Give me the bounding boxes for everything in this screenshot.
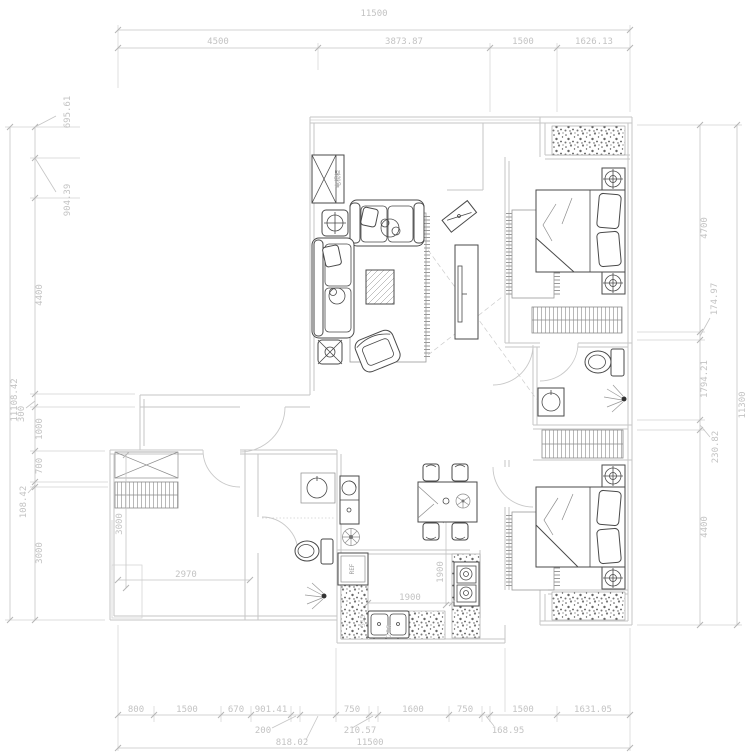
dim-bottom-seg-6: 750: [344, 705, 360, 715]
dim-bottom-seg-10: 168.95: [492, 726, 525, 736]
living-room: 电视柜: [312, 155, 548, 415]
dim-bottom-seg-0: 800: [128, 705, 144, 715]
dim-bedroom3-width: 2970: [175, 570, 197, 580]
nightstand-bedroom2-bottom: [602, 567, 625, 589]
dim-sink-width: 515: [359, 615, 367, 628]
dining-area: [340, 464, 477, 546]
dim-bottom-total: 11500: [356, 738, 383, 748]
dim-bottom-seg-7: 210.57: [344, 726, 377, 736]
fridge-label: REF: [349, 563, 356, 574]
dim-bedroom3-depth: 3000: [115, 513, 125, 535]
dim-bottom-seg-5: 818.02: [276, 738, 309, 748]
toilet-bathroom1: [585, 349, 624, 376]
bay-window-bottom: [552, 592, 625, 620]
bathroom2: [295, 473, 335, 609]
bedroom1: [509, 168, 625, 298]
nightstand-bedroom1-top: [602, 168, 625, 190]
toilet-bathroom2: [295, 539, 333, 564]
dim-left-seg-5: 700: [35, 458, 45, 474]
bathroom1-door-arc: [540, 343, 578, 381]
sofa-three-seat: [350, 200, 424, 246]
side-table-small: [318, 340, 342, 364]
side-table-lamp: [322, 210, 348, 236]
dim-bottom-seg-4: 200: [255, 726, 271, 736]
dim-kitchen-depth: 1900: [436, 561, 446, 583]
dim-top-seg-3: 1626.13: [575, 37, 613, 47]
dim-right-total: 11300: [738, 391, 748, 418]
dim-left-seg-2: 4400: [35, 284, 45, 306]
dim-right-seg-3: 230.82: [711, 431, 721, 464]
laundry-unit: [340, 476, 359, 524]
dimension-chain-bottom: 800 1500 670 901.41 200 818.02 750 210.5…: [115, 625, 633, 751]
bay-window-top: [552, 126, 625, 155]
dim-right-seg-0: 4700: [700, 217, 710, 239]
tv-cabinet-wall: 电视柜: [312, 155, 344, 203]
sink-bathroom1: [538, 388, 564, 416]
dim-top-seg-0: 4500: [207, 37, 229, 47]
dim-right-seg-1: 174.97: [710, 283, 720, 316]
dim-left-seg-6: 108.42: [19, 486, 29, 519]
dimension-chain-top: 11500 4500 3873.87 1500 1626.13: [115, 9, 633, 112]
decor-frame: [442, 201, 476, 233]
dim-bottom-seg-8: 1600: [402, 705, 424, 715]
nightstand-bedroom2-top: [602, 465, 625, 487]
entry-door-arc: [240, 407, 285, 452]
bathroom2-door-arc: [262, 517, 298, 553]
dimension-chain-right: 4700 174.97 1794.21 230.82 4400 11300: [637, 122, 748, 628]
tv-cabinet-label: 电视柜: [334, 170, 342, 188]
bed-bedroom1: [536, 190, 625, 272]
shower-bathroom1: [604, 385, 627, 412]
dim-bottom-seg-9: 750: [457, 705, 473, 715]
bedroom3-door-arc: [203, 450, 240, 487]
dim-right-seg-4: 4400: [700, 516, 710, 538]
dining-table: [418, 482, 477, 522]
dim-bottom-seg-1: 1500: [176, 705, 198, 715]
dim-bottom-seg-3: 901.41: [255, 705, 288, 715]
nightstand-bedroom1-bottom: [602, 272, 625, 294]
dim-bottom-seg-12: 1631.05: [574, 705, 612, 715]
floor-plan-canvas: 11500 4500 3873.87 1500 1626.13 800 1500…: [0, 0, 750, 755]
bedroom2: [509, 465, 625, 590]
dim-bottom-seg-11: 1500: [512, 705, 534, 715]
tv-stand-hall: [455, 245, 478, 339]
sofa-chaise: [312, 238, 354, 338]
armchair: [353, 328, 403, 375]
column-bedroom3: [112, 565, 142, 618]
sink-bathroom2: [301, 473, 335, 503]
dimension-chain-left: 695.61 904.39 4400 300 1000 700 108.42 3…: [5, 96, 135, 623]
door-swings: [203, 343, 578, 639]
dim-bottom-seg-2: 670: [228, 705, 244, 715]
dim-kitchen-width: 1900: [399, 593, 421, 603]
fridge: REF: [338, 553, 368, 585]
dim-left-seg-4: 1000: [35, 418, 45, 440]
interior-dims-bedroom3: 3000 2970: [115, 452, 253, 591]
shower-bathroom2: [305, 583, 327, 609]
dim-left-seg-0: 695.61: [63, 96, 73, 129]
dim-left-seg-1: 904.39: [63, 184, 73, 217]
dim-left-seg-7: 3000: [35, 542, 45, 564]
bed-bedroom2: [536, 487, 625, 567]
hall-door-arc: [493, 345, 533, 385]
bedroom3: 3000 2970: [112, 452, 253, 618]
dim-sink-offset: 206: [385, 625, 393, 638]
dim-left-total: 11108.42: [10, 378, 20, 421]
floor-plant: [342, 528, 360, 546]
bathroom1: [538, 349, 627, 416]
floor-plan-drawing: 11500 4500 3873.87 1500 1626.13 800 1500…: [0, 0, 750, 755]
dim-top-total: 11500: [360, 9, 387, 19]
dim-top-seg-1: 3873.87: [385, 37, 423, 47]
stove: [454, 562, 479, 606]
coffee-table: [366, 270, 394, 304]
dim-right-seg-2: 1794.21: [700, 360, 710, 398]
bedroom2-door-arc: [493, 467, 533, 507]
dim-top-seg-2: 1500: [512, 37, 534, 47]
